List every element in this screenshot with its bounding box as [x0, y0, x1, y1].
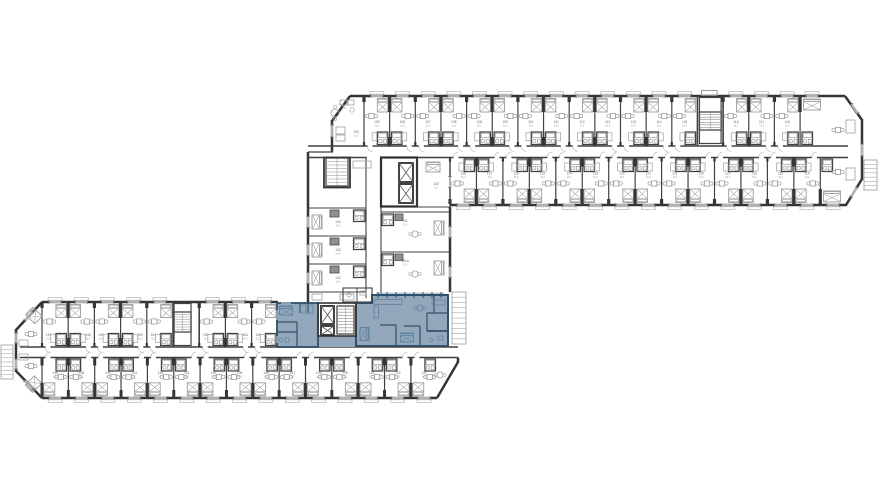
svg-text:16,2: 16,2 [395, 376, 400, 379]
svg-text:16,2: 16,2 [805, 176, 810, 179]
svg-text:16,2: 16,2 [343, 376, 348, 379]
svg-text:132: 132 [335, 276, 341, 280]
svg-text:16,2: 16,2 [540, 176, 545, 179]
svg-text:16,2: 16,2 [620, 176, 625, 179]
svg-text:131: 131 [402, 219, 408, 223]
svg-text:16,2: 16,2 [53, 376, 58, 379]
svg-text:148: 148 [85, 333, 91, 337]
svg-text:106: 106 [400, 120, 406, 124]
svg-text:150: 150 [138, 333, 144, 337]
svg-text:21,9: 21,9 [354, 135, 359, 138]
svg-text:16,2: 16,2 [631, 125, 636, 128]
svg-text:112: 112 [605, 120, 610, 124]
svg-text:105: 105 [353, 130, 359, 134]
svg-text:16,2: 16,2 [138, 338, 143, 341]
svg-text:16,2: 16,2 [477, 125, 482, 128]
svg-text:105: 105 [374, 120, 380, 124]
svg-text:16,2: 16,2 [554, 125, 559, 128]
svg-text:16,2: 16,2 [778, 176, 783, 179]
svg-text:16,2: 16,2 [211, 376, 216, 379]
svg-text:16,2: 16,2 [422, 376, 427, 379]
svg-text:16,2: 16,2 [514, 176, 519, 179]
svg-text:112: 112 [579, 120, 584, 124]
svg-text:16,2: 16,2 [374, 125, 379, 128]
svg-text:114: 114 [656, 120, 661, 124]
svg-text:16,2: 16,2 [461, 176, 466, 179]
svg-text:16,2: 16,2 [86, 338, 91, 341]
svg-text:107: 107 [425, 120, 431, 124]
svg-text:16,2: 16,2 [682, 125, 687, 128]
svg-text:113: 113 [631, 120, 636, 124]
svg-text:16,2: 16,2 [264, 376, 269, 379]
svg-text:118: 118 [785, 120, 790, 124]
svg-text:16,2: 16,2 [369, 376, 374, 379]
svg-text:16,2: 16,2 [567, 176, 572, 179]
svg-text:117: 117 [759, 120, 764, 124]
svg-text:16,2: 16,2 [699, 176, 704, 179]
svg-text:16,2: 16,2 [605, 125, 610, 128]
svg-text:134: 134 [335, 220, 341, 224]
svg-text:16,2: 16,2 [593, 176, 598, 179]
svg-text:108: 108 [451, 120, 457, 124]
svg-text:16,4: 16,4 [336, 225, 341, 228]
svg-text:133: 133 [335, 248, 341, 252]
svg-text:16,2: 16,2 [290, 376, 295, 379]
svg-text:115: 115 [682, 120, 687, 124]
svg-text:16,2: 16,2 [316, 376, 321, 379]
svg-text:16,2: 16,2 [487, 176, 492, 179]
svg-text:16,4: 16,4 [336, 253, 341, 256]
svg-text:110: 110 [528, 120, 533, 124]
svg-text:16,2: 16,2 [759, 125, 764, 128]
svg-text:16,4: 16,4 [336, 281, 341, 284]
svg-text:16,2: 16,2 [79, 376, 84, 379]
svg-text:111: 111 [554, 120, 559, 124]
svg-text:16,2: 16,2 [785, 125, 790, 128]
svg-text:16,2: 16,2 [528, 125, 533, 128]
svg-text:16,2: 16,2 [451, 125, 456, 128]
svg-text:16,2: 16,2 [672, 176, 677, 179]
svg-text:16,2: 16,2 [106, 376, 111, 379]
svg-text:16,2: 16,2 [243, 338, 248, 341]
svg-text:16,7: 16,7 [434, 187, 439, 190]
svg-text:23,6: 23,6 [403, 264, 408, 267]
svg-text:16,2: 16,2 [503, 125, 508, 128]
svg-text:109: 109 [502, 120, 508, 124]
svg-text:130: 130 [433, 182, 439, 186]
svg-text:108: 108 [477, 120, 483, 124]
svg-text:131a: 131a [401, 259, 409, 263]
svg-text:16,2: 16,2 [734, 125, 739, 128]
svg-text:16,2: 16,2 [580, 125, 585, 128]
svg-text:23,6: 23,6 [403, 224, 408, 227]
svg-text:16,2: 16,2 [752, 176, 757, 179]
svg-text:16,2: 16,2 [132, 376, 137, 379]
svg-text:16,2: 16,2 [657, 125, 662, 128]
svg-text:16,2: 16,2 [426, 125, 431, 128]
svg-text:16,2: 16,2 [237, 376, 242, 379]
svg-text:16,2: 16,2 [158, 376, 163, 379]
svg-text:16,2: 16,2 [725, 176, 730, 179]
svg-text:16,2: 16,2 [400, 125, 405, 128]
svg-text:116: 116 [733, 120, 738, 124]
svg-text:16,2: 16,2 [646, 176, 651, 179]
svg-text:16,2: 16,2 [185, 376, 190, 379]
svg-text:154: 154 [242, 333, 248, 337]
